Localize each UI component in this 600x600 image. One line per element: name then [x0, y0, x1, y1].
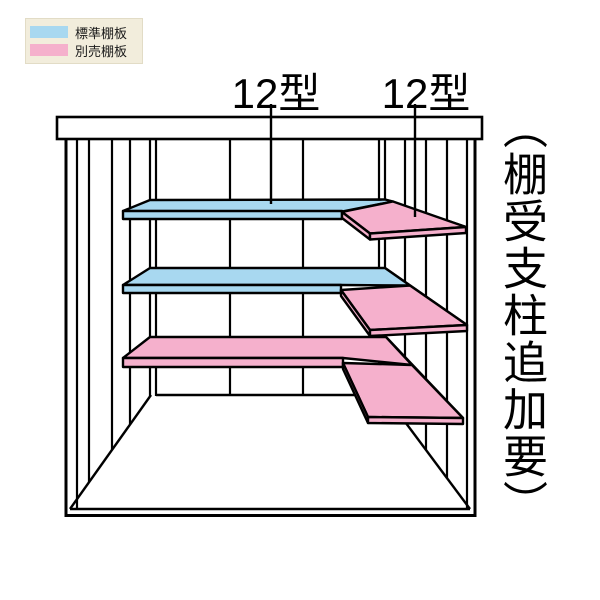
left-floor-corner-line: [70, 395, 151, 509]
optional-back-shelf-front-edge: [123, 358, 343, 367]
shelf-level-2: [123, 268, 467, 336]
shelf-level-3: [123, 337, 463, 424]
shed-shelf-diagram-page: 標準棚板 別売棚板 12型 12型 （棚受支柱追加要）: [0, 0, 600, 600]
standard-shelf-front-edge: [123, 211, 342, 219]
top-beam: [57, 117, 482, 139]
shed-line-drawing: [0, 0, 600, 600]
standard-shelf-top-surface: [123, 268, 410, 286]
optional-side-shelf-front-edge: [368, 417, 463, 424]
standard-shelf-front-edge: [123, 285, 341, 293]
